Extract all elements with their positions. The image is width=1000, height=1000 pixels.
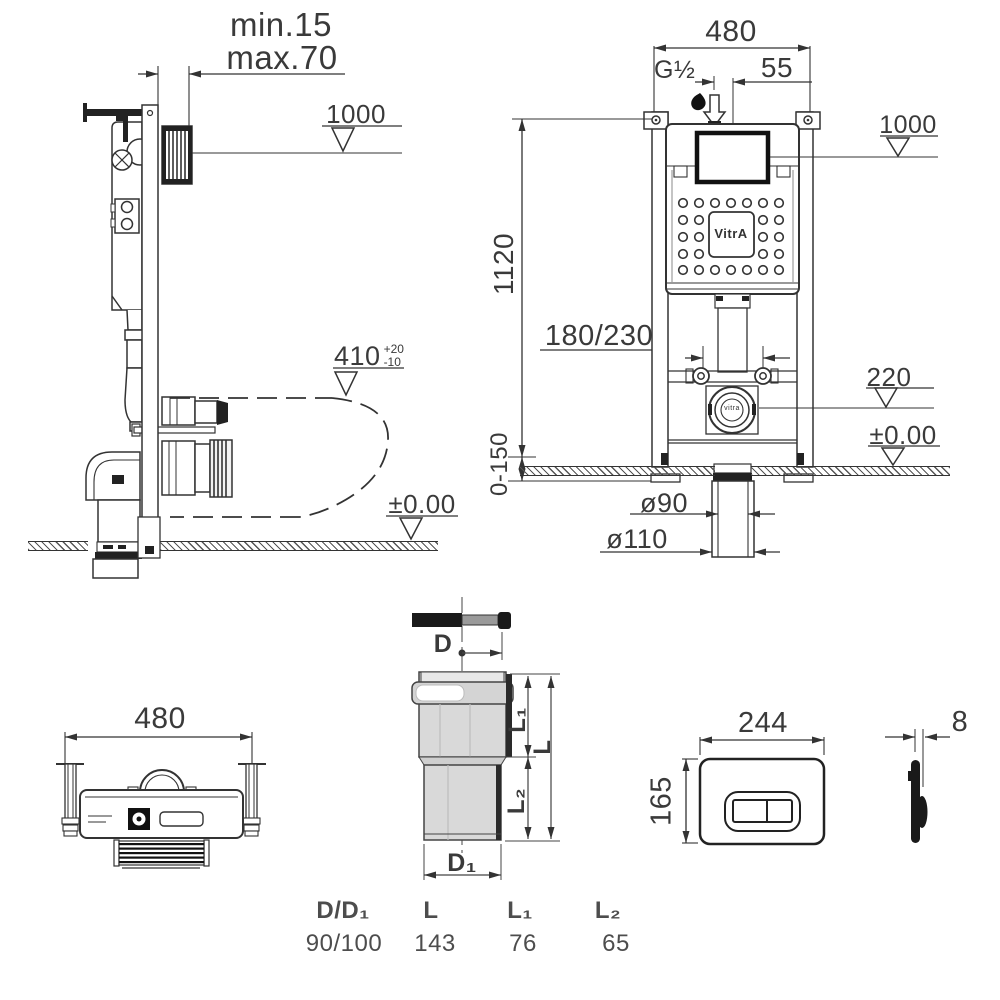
line-art — [0, 0, 1000, 1000]
front-datum-1000-label: 1000 — [879, 111, 937, 140]
table-value-l: 143 — [414, 930, 456, 958]
drain-outer-dia-label: ø110 — [606, 524, 668, 555]
pipe-l-label: L — [529, 739, 557, 754]
side-datum-1000-label: 1000 — [326, 99, 386, 130]
tolerance-minus: -10 — [384, 356, 404, 369]
foot-adjust-label: 0-150 — [486, 432, 514, 496]
table-value-dd1: 90/100 — [306, 930, 382, 958]
ribbed-block — [114, 840, 209, 868]
plate-thickness-label: 8 — [952, 706, 969, 739]
inlet-thread-label: G½ — [654, 56, 695, 85]
flush-plate-housing-side — [162, 126, 192, 184]
floor-hatch — [751, 466, 950, 476]
bowl-outlet-tolerance: +20 -10 — [384, 343, 404, 372]
inspection-window — [697, 133, 768, 182]
side-floor-datum-label: ±0.00 — [388, 489, 455, 520]
wall-anchor-rod — [84, 109, 142, 116]
table-header-l1: L₁ — [507, 897, 533, 925]
outlet-logo: vitra — [724, 405, 740, 412]
inlet-offset-label: 55 — [761, 52, 793, 84]
table-value-l1: 76 — [509, 930, 537, 958]
floor-hatch — [520, 466, 715, 476]
datum-triangle-icon — [887, 138, 909, 156]
floor-hatch — [160, 541, 438, 551]
table-header-dd1: D/D₁ — [316, 897, 369, 925]
outlet-height-label: 220 — [867, 362, 912, 393]
floor-hatch — [28, 541, 88, 551]
datum-triangle-icon — [400, 518, 422, 539]
frame-height-label: 1120 — [488, 233, 520, 295]
datum-triangle-icon — [332, 128, 354, 151]
bowl-outlet-height-label: 410 +20 -10 — [334, 341, 404, 372]
front-view-drawing — [508, 45, 940, 558]
flush-plate-side — [908, 760, 928, 843]
bowl-outlet-height-value: 410 — [334, 341, 381, 372]
flush-pipe-cap — [217, 400, 228, 425]
pipe-d-label: D — [434, 630, 453, 659]
supply-spacing-label: 180/230 — [545, 320, 653, 353]
plate-width-label: 244 — [738, 707, 788, 740]
pipe-d1-label: D₁ — [447, 849, 476, 878]
table-header-l2: L₂ — [595, 897, 621, 925]
pipe-l1-label: L₁ — [504, 707, 532, 733]
technical-drawing-sheet: min.15 max.70 1000 410 +20 -10 ±0.00 480… — [0, 0, 1000, 1000]
pipe-l2-label: L₂ — [503, 788, 531, 814]
water-drop-icon — [691, 93, 705, 110]
top-view-drawing — [56, 732, 266, 868]
top-view-width-label: 480 — [134, 702, 186, 736]
max-wall-distance-label: max.70 — [226, 39, 337, 77]
table-header-l: L — [423, 897, 438, 925]
table-value-l2: 65 — [602, 930, 630, 958]
front-floor-datum-label: ±0.00 — [869, 420, 936, 451]
frame-width-label: 480 — [705, 15, 757, 49]
brand-logo: VitrA — [714, 226, 747, 241]
flush-plate-drawing — [682, 729, 950, 844]
plate-height-label: 165 — [646, 776, 679, 826]
drain-inner-dia-label: ø90 — [640, 488, 688, 519]
frame-rail — [142, 105, 158, 545]
datum-triangle-icon — [335, 372, 357, 395]
